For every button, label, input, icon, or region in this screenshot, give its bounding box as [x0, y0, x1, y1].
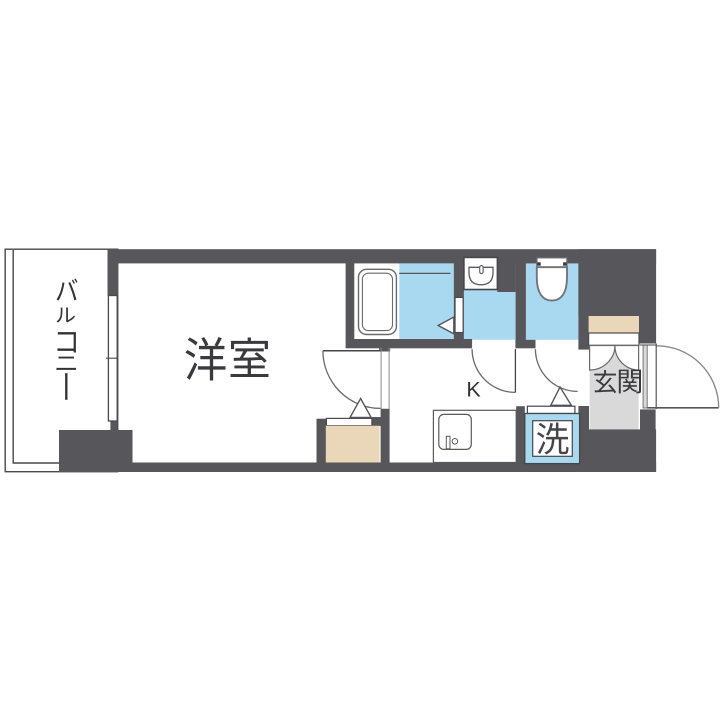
svg-text:K: K — [466, 378, 481, 402]
